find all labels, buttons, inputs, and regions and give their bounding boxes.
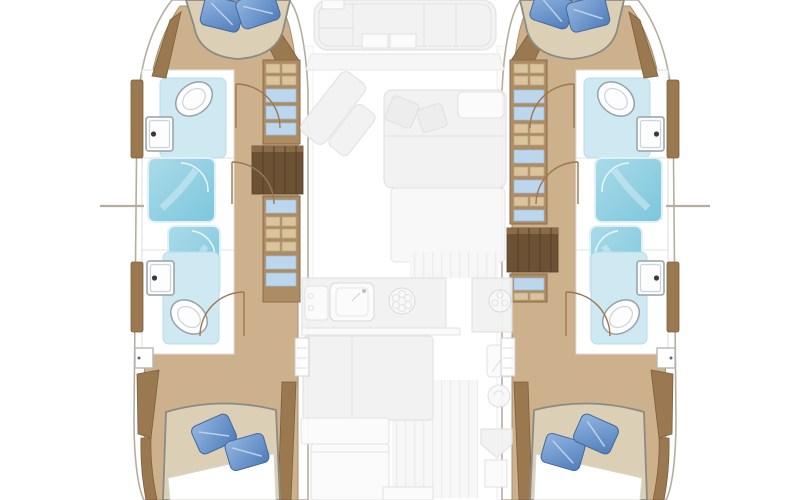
port-companionway-steps [252,146,303,194]
port-aft-berth [163,403,280,500]
starboard-deck-trim-aft [667,262,679,332]
saloon-sofa [384,90,506,188]
galley-burner [389,288,415,314]
port-wardrobe-upper [263,60,300,144]
sink [147,261,174,295]
port-hull-entry [295,338,309,376]
port-wardrobe-lower [263,196,300,302]
port-deck-trim-fwd [131,80,143,158]
starboard-wardrobe-upper [510,60,547,224]
galley-counter-right [472,278,512,332]
sink [637,117,664,151]
sink [146,117,173,151]
foredeck-seating [314,0,496,50]
starboard-companionway-steps [507,228,558,272]
starboard-hull [502,0,679,500]
floor-plan-canvas [0,0,810,500]
starboard-hull-entry [501,338,515,376]
starboard-wardrobe-lower [510,274,547,302]
port-deck-hatch [135,348,153,368]
port-deck-trim-aft [131,262,143,332]
saloon-windshield [306,54,504,70]
port-shower-1 [148,158,215,222]
port-hull [131,0,308,500]
sink [637,261,664,295]
starboard-deck-trim-fwd [667,80,679,158]
starboard-deck-hatch [657,348,675,368]
galley-counter [302,278,460,335]
deck-planks-mid [410,252,498,278]
starboard-shower-1 [595,158,662,222]
saloon-table [391,188,505,262]
galley-sink [330,283,374,321]
catamaran-floor-plan [0,0,810,500]
starboard-aft-berth [530,403,647,500]
cockpit-bench [383,487,433,500]
